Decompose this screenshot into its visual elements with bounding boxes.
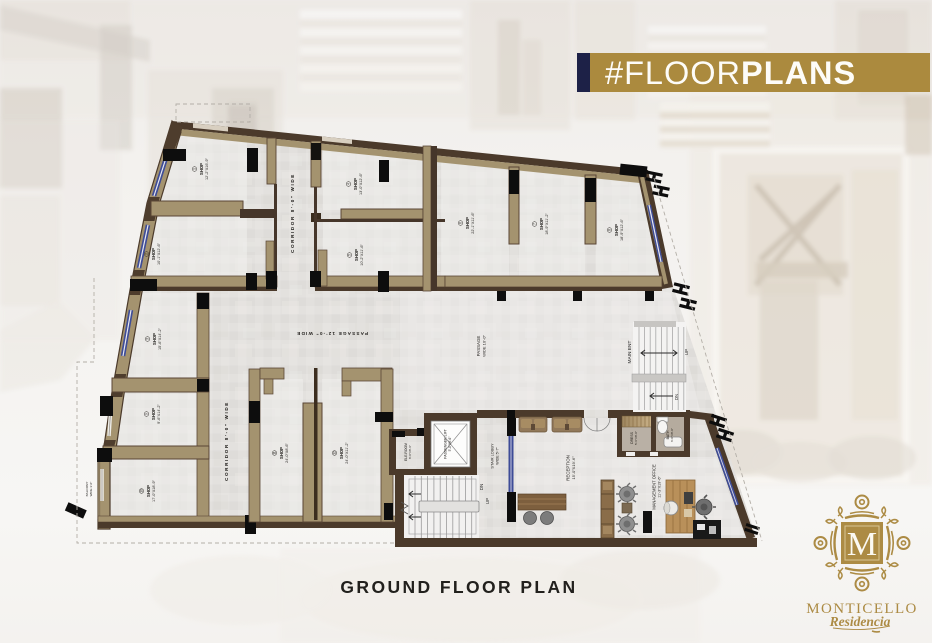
svg-text:SHOP: SHOP (151, 408, 156, 420)
svg-text:RECEPTION: RECEPTION (565, 455, 570, 481)
svg-text:12'-2"X16'-9": 12'-2"X16'-9" (205, 157, 209, 180)
svg-text:SHOP: SHOP (151, 248, 156, 260)
svg-text:DN: DN (674, 394, 679, 400)
svg-text:12: 12 (333, 451, 337, 455)
svg-text:4: 4 (347, 183, 351, 185)
svg-text:6: 6 (459, 222, 463, 224)
svg-text:STAIR LOBBY: STAIR LOBBY (489, 443, 494, 469)
svg-text:10'-2"X11'-6": 10'-2"X11'-6" (360, 244, 364, 266)
svg-text:24'-0"X8'-6": 24'-0"X8'-6" (285, 442, 289, 462)
svg-text:2: 2 (145, 253, 149, 255)
svg-text:9: 9 (145, 413, 149, 415)
svg-text:WIDE 5'-7": WIDE 5'-7" (495, 447, 499, 465)
svg-text:PASSENGER LIFT: PASSENGER LIFT (444, 428, 448, 459)
svg-text:17'-0"X18'-9": 17'-0"X18'-9" (152, 479, 156, 502)
svg-text:Residencia: Residencia (829, 614, 891, 629)
svg-text:UP: UP (684, 349, 689, 355)
svg-text:10: 10 (140, 489, 144, 493)
svg-text:GROUND FLOOR PLAN: GROUND FLOOR PLAN (340, 577, 577, 597)
svg-text:24'-0"X11'-2": 24'-0"X11'-2" (345, 442, 349, 464)
svg-text:M: M (847, 526, 877, 563)
svg-text:WIDE 3'-0": WIDE 3'-0" (89, 482, 93, 497)
svg-text:5'-6"X8'-0": 5'-6"X8'-0" (634, 431, 638, 445)
svg-text:SHOP: SHOP (152, 333, 157, 345)
svg-text:11'-3"X19'-6": 11'-3"X19'-6" (658, 476, 662, 498)
svg-text:MANAGEMENT OFFICE: MANAGEMENT OFFICE (651, 464, 656, 510)
svg-text:10'-1"X12'-6": 10'-1"X12'-6" (157, 242, 161, 265)
svg-text:CORRIDOR 8'-0" WIDE: CORRIDOR 8'-0" WIDE (290, 173, 295, 253)
svg-text:SHOP: SHOP (614, 224, 619, 236)
svg-text:9'-6"X14'-2": 9'-6"X14'-2" (157, 403, 161, 423)
svg-text:1: 1 (193, 168, 197, 170)
svg-text:PASSAGE 12'-0" WIDE: PASSAGE 12'-0" WIDE (296, 331, 368, 336)
svg-text:SHOP: SHOP (339, 447, 344, 459)
svg-text:3: 3 (146, 338, 150, 340)
svg-text:UP: UP (485, 498, 490, 504)
svg-text:SHOP: SHOP (199, 163, 204, 175)
svg-text:15'-6"X14'-2": 15'-6"X14'-2" (158, 327, 162, 350)
svg-text:5: 5 (348, 254, 352, 256)
svg-text:SHOP: SHOP (465, 217, 470, 229)
svg-text:18'-9"X12'-6": 18'-9"X12'-6" (620, 218, 624, 241)
svg-text:SHOP: SHOP (279, 447, 284, 459)
svg-text:7: 7 (533, 223, 537, 225)
svg-text:SHOP: SHOP (353, 178, 358, 190)
svg-text:6'-0"X8'-0": 6'-0"X8'-0" (670, 428, 674, 442)
svg-text:8: 8 (608, 229, 612, 231)
svg-text:15'-0"X19'-6": 15'-0"X19'-6" (571, 456, 576, 480)
svg-text:8'-0"X8'-6": 8'-0"X8'-6" (408, 445, 412, 459)
svg-text:18'-9"X11'-2": 18'-9"X11'-2" (545, 213, 549, 235)
svg-text:13'-0"X12'-6": 13'-0"X12'-6" (359, 172, 363, 195)
svg-text:22'-1"X11'-6": 22'-1"X11'-6" (471, 212, 475, 234)
svg-text:CORRIDOR 8'-0" WIDE: CORRIDOR 8'-0" WIDE (224, 401, 229, 481)
svg-text:SHOP: SHOP (539, 218, 544, 230)
svg-text:DN: DN (479, 484, 484, 491)
svg-text:5'-0"X8'-6": 5'-0"X8'-6" (448, 437, 452, 452)
svg-text:MAIN ENT: MAIN ENT (627, 340, 633, 363)
svg-text:SHOP: SHOP (354, 249, 359, 261)
svg-text:PASSAGE: PASSAGE (476, 336, 481, 357)
svg-text:WIDE 10'-0": WIDE 10'-0" (481, 335, 486, 357)
svg-text:11: 11 (273, 451, 277, 455)
svg-text:#FLOORPLANS: #FLOORPLANS (605, 55, 856, 91)
svg-text:SHOP: SHOP (146, 485, 151, 497)
